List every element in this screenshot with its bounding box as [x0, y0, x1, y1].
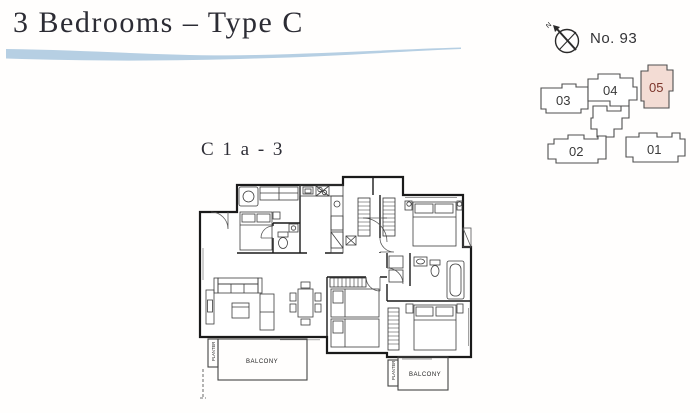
floor-plan-drawing: BALCONY BALCONY PLANTER PLANTER: [170, 168, 485, 412]
key-plan-map: 03 04 05 02 01: [530, 60, 700, 178]
unit-03-label: 03: [556, 93, 570, 108]
swoosh-wave-shape: [6, 48, 461, 61]
ac-ledge: [463, 228, 471, 247]
unit-type-code: C 1 a - 3: [201, 139, 284, 161]
brochure-page: 3 Bedrooms – Type C N No. 93 03 04 05 02…: [0, 0, 700, 413]
unit-04-label: 04: [603, 83, 617, 98]
title-swoosh-decoration: [6, 45, 464, 69]
unit-05-label: 05: [649, 80, 663, 95]
balcony-right-label: BALCONY: [409, 372, 441, 378]
building-core-shape: [591, 106, 629, 137]
north-compass-icon: N: [546, 18, 588, 60]
compass-arrow-shaft: [557, 29, 576, 50]
compass-north-label: N: [546, 21, 553, 30]
unit-02-label: 02: [569, 144, 583, 159]
balcony-left-label: BALCONY: [246, 359, 278, 365]
keyplan-number: No. 93: [590, 30, 637, 47]
planter-left-label: PLANTER: [211, 342, 216, 361]
planter-right-label: PLANTER: [391, 361, 396, 380]
unit-01-label: 01: [647, 142, 661, 157]
page-title: 3 Bedrooms – Type C: [13, 6, 304, 40]
